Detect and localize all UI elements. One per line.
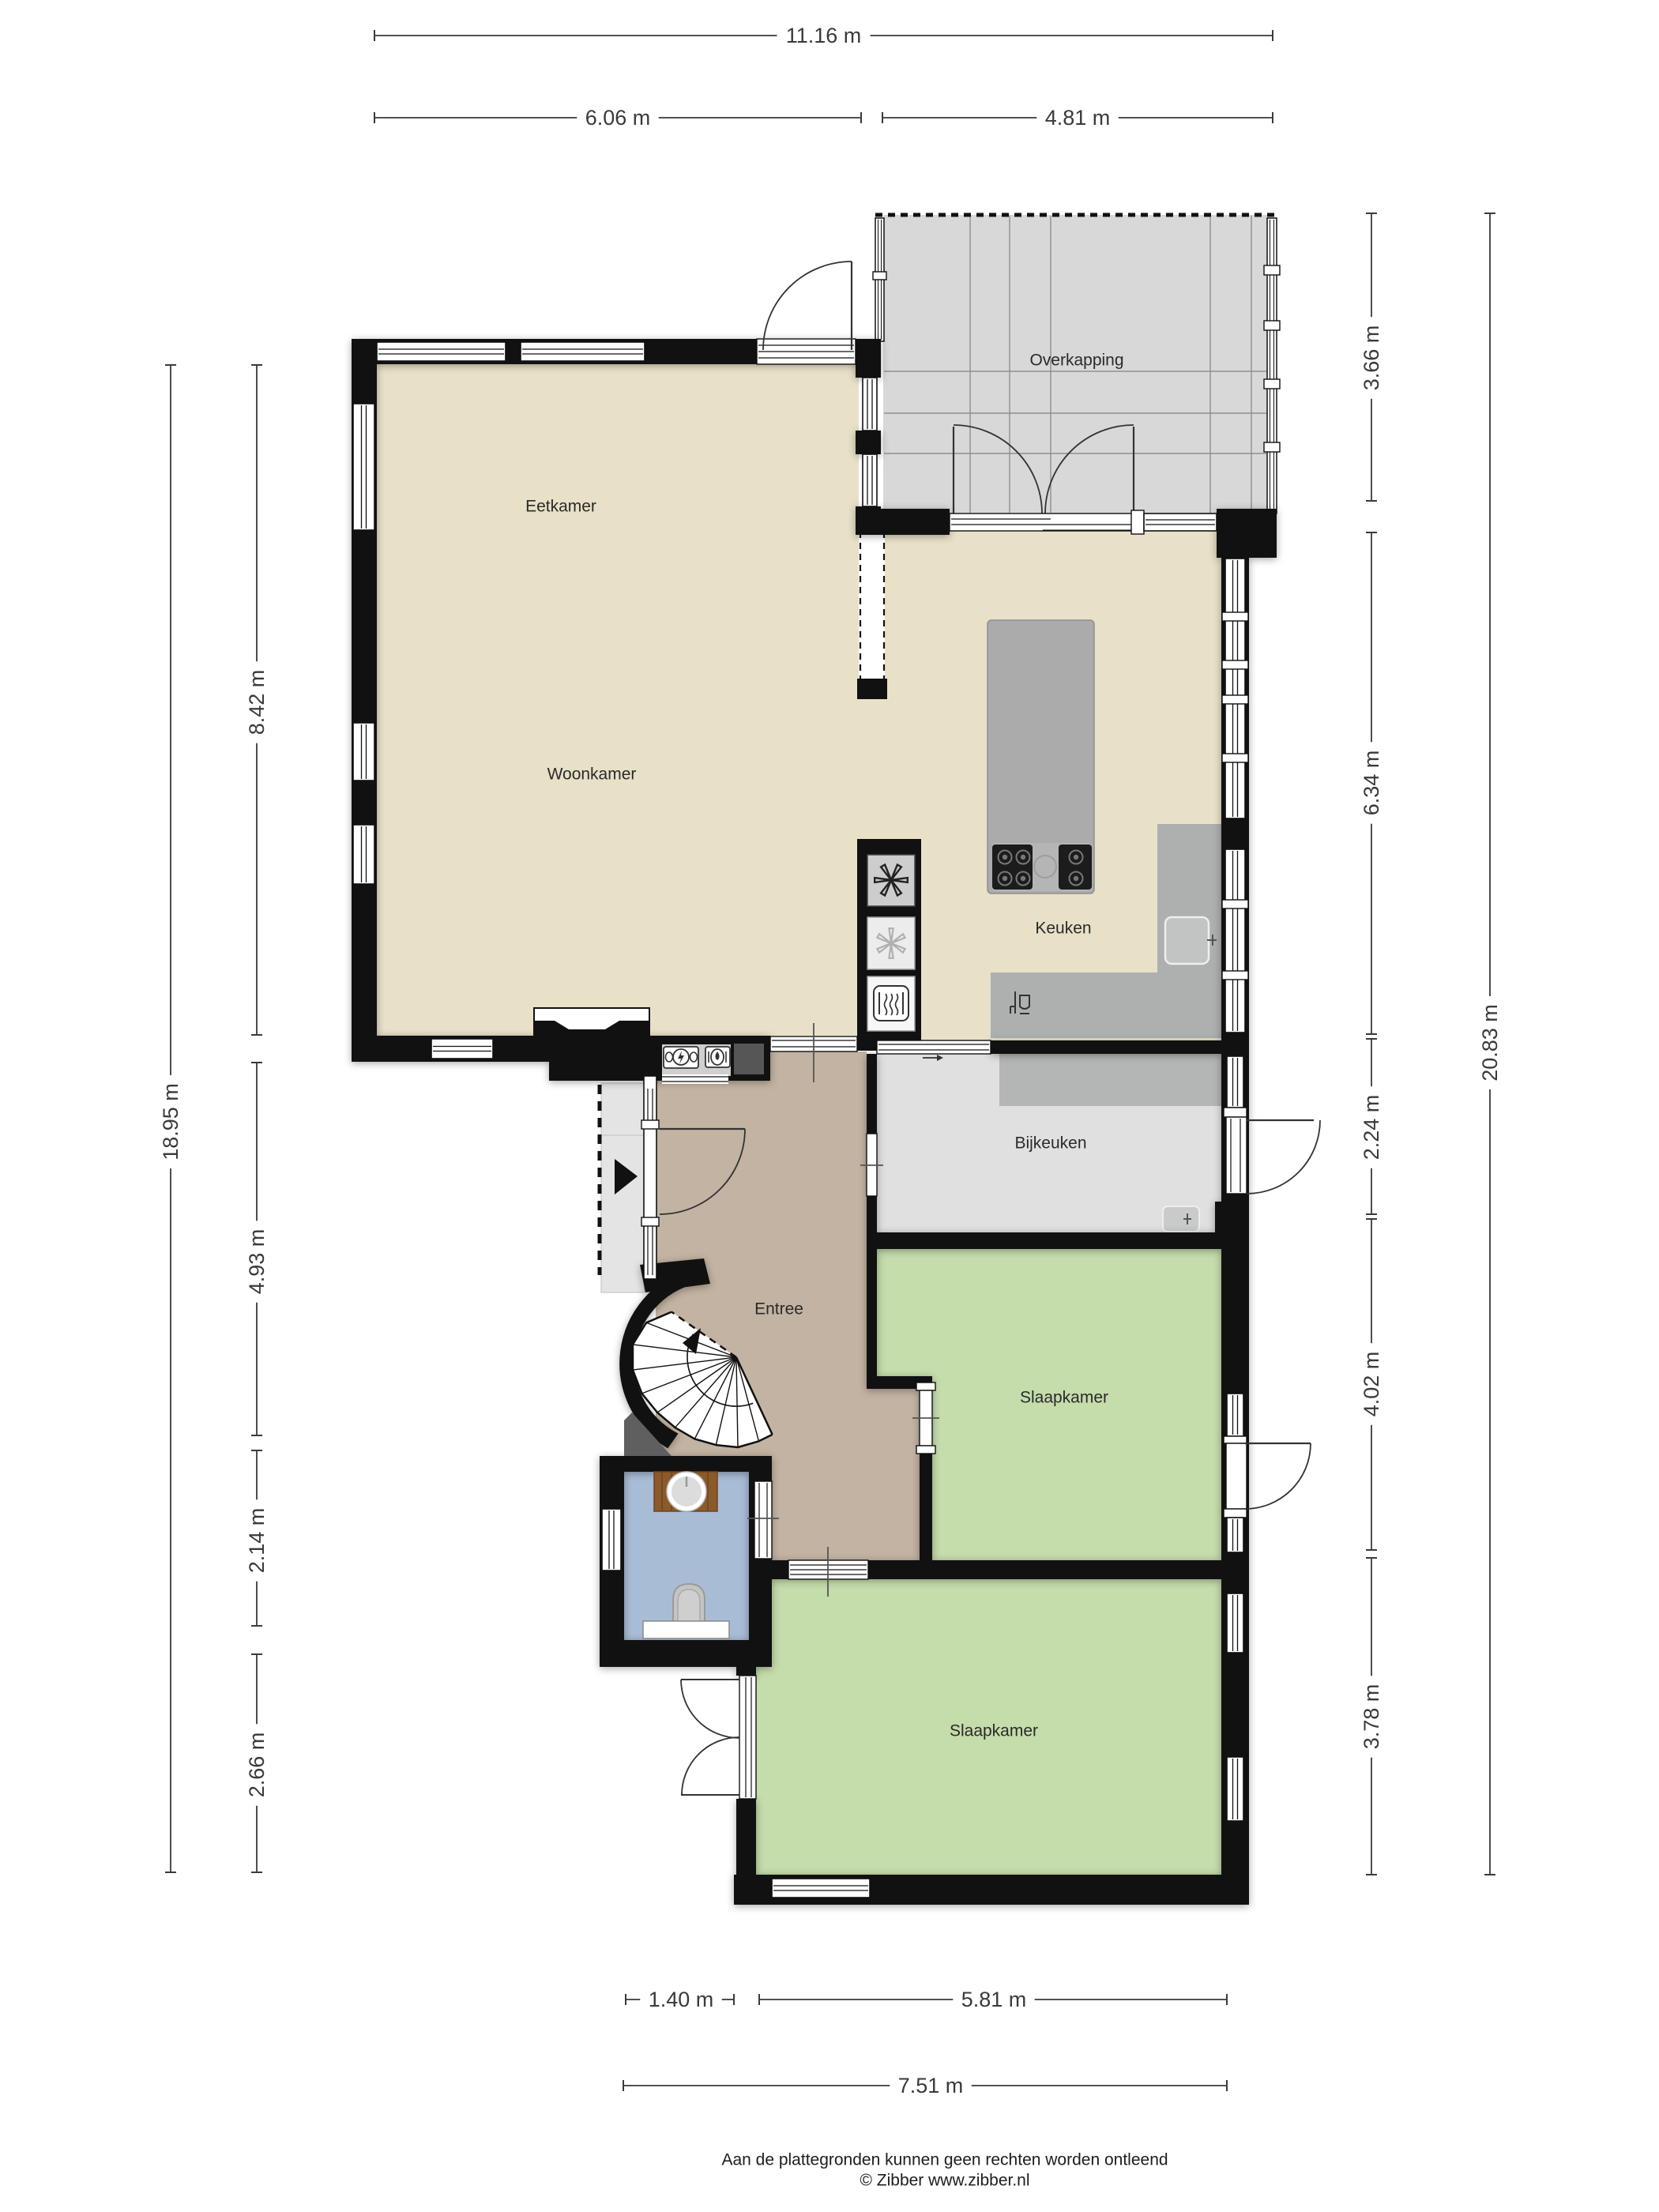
svg-text:11.16 m: 11.16 m (786, 24, 862, 47)
svg-text:20.83 m: 20.83 m (1478, 1004, 1502, 1082)
svg-text:5.81 m: 5.81 m (961, 1988, 1027, 2011)
svg-text:Entree: Entree (754, 1300, 803, 1319)
svg-text:4.93 m: 4.93 m (245, 1229, 269, 1295)
svg-text:Woonkamer: Woonkamer (547, 766, 637, 784)
svg-text:Overkapping: Overkapping (1029, 352, 1123, 370)
svg-text:3.78 m: 3.78 m (1360, 1684, 1383, 1750)
svg-text:6.06 m: 6.06 m (585, 106, 651, 130)
svg-text:Eetkamer: Eetkamer (525, 498, 596, 516)
svg-text:Bijkeuken: Bijkeuken (1014, 1134, 1086, 1153)
svg-text:8.42 m: 8.42 m (245, 670, 269, 735)
svg-text:Keuken: Keuken (1035, 920, 1091, 938)
svg-text:Slaapkamer: Slaapkamer (1020, 1389, 1108, 1407)
svg-text:Aan de plattegronden kunnen ge: Aan de plattegronden kunnen geen rechten… (721, 2151, 1168, 2169)
svg-text:2.14 m: 2.14 m (245, 1508, 269, 1574)
svg-text:2.66 m: 2.66 m (245, 1732, 269, 1798)
svg-text:© Zibber www.zibber.nl: © Zibber www.zibber.nl (860, 2172, 1029, 2190)
svg-text:1.40 m: 1.40 m (649, 1988, 714, 2011)
svg-text:18.95 m: 18.95 m (159, 1083, 182, 1161)
svg-text:3.66 m: 3.66 m (1360, 325, 1383, 391)
svg-text:4.81 m: 4.81 m (1045, 106, 1111, 130)
svg-text:2.24 m: 2.24 m (1360, 1095, 1383, 1161)
svg-text:Slaapkamer: Slaapkamer (950, 1722, 1038, 1740)
svg-text:7.51 m: 7.51 m (898, 2074, 964, 2097)
svg-text:4.02 m: 4.02 m (1360, 1352, 1383, 1417)
svg-text:6.34 m: 6.34 m (1360, 750, 1383, 816)
